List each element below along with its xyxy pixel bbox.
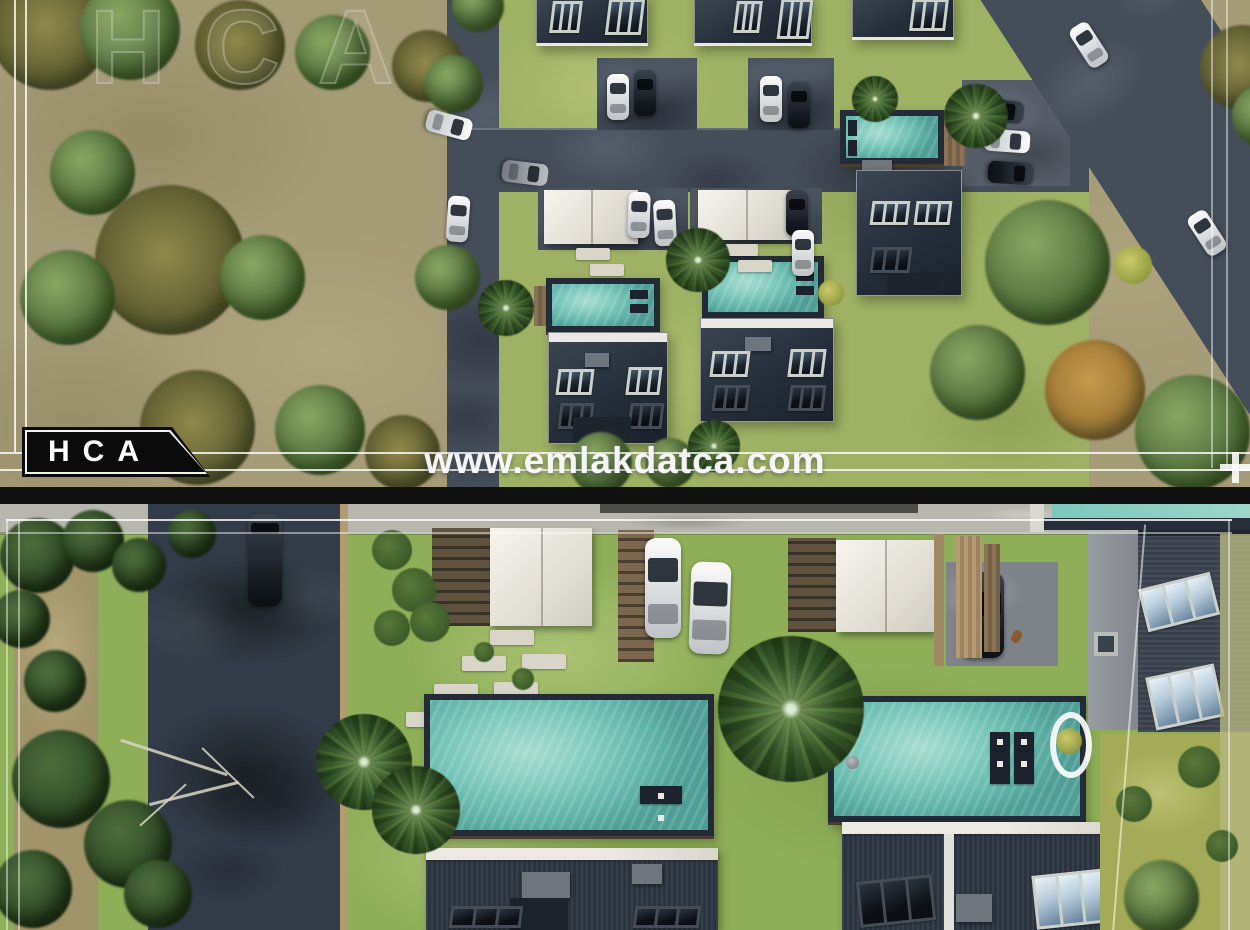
- tree: [1124, 860, 1199, 930]
- palm-tree: [666, 228, 730, 292]
- swimming-pool-large: [828, 696, 1086, 825]
- wood-screen: [984, 544, 1000, 652]
- roof-ridge: [944, 834, 954, 930]
- panel: [813, 388, 823, 408]
- garden-shrub: [474, 642, 494, 662]
- frame-line: [25, 0, 27, 452]
- stepping-stone: [576, 248, 610, 260]
- panel: [1035, 877, 1061, 927]
- pool-water: [834, 702, 1080, 816]
- pergola: [788, 538, 836, 632]
- tree: [124, 860, 192, 928]
- panel: [744, 4, 752, 30]
- carport-canopy: [544, 190, 638, 244]
- rooftop-solar-panels: [733, 1, 763, 33]
- rooftop-solar-panels: [777, 0, 814, 39]
- stepping-stone: [590, 264, 624, 276]
- stepping-stone: [490, 630, 534, 645]
- rooftop-skylights: [555, 369, 594, 395]
- panel: [713, 354, 724, 374]
- tree: [415, 245, 480, 310]
- stepping-stone: [738, 260, 772, 272]
- panel: [791, 388, 801, 408]
- window: [1094, 632, 1118, 656]
- panel: [619, 2, 631, 32]
- pool-ring-planter: [1050, 712, 1092, 778]
- dark-roof-windows: [449, 906, 524, 928]
- roof-box: [585, 353, 609, 367]
- tree: [220, 235, 305, 320]
- tree-shadow: [150, 704, 340, 844]
- frame-line: [1226, 0, 1228, 468]
- car-dark: [987, 160, 1034, 185]
- image-separator: [0, 487, 1250, 504]
- carport-canopy: [490, 528, 592, 626]
- frame-line: [14, 0, 16, 452]
- rooftop-skylights: [787, 349, 826, 377]
- tree: [930, 325, 1025, 420]
- roof-box: [745, 337, 771, 351]
- panel: [873, 204, 884, 222]
- roof-parapet: [426, 848, 718, 860]
- watermark-url: www.emlakdatca.com: [0, 440, 1250, 482]
- panel: [498, 909, 520, 925]
- tree: [20, 250, 115, 345]
- car-white: [645, 538, 681, 638]
- panel: [885, 250, 897, 270]
- rooftop-solar-panels: [605, 0, 645, 35]
- panel: [736, 354, 747, 374]
- panel: [923, 2, 934, 28]
- bottom-aerial-view: [0, 504, 1250, 930]
- frame-line: [18, 519, 20, 930]
- autumn-tree: [1045, 340, 1145, 440]
- panel: [559, 372, 569, 392]
- pool-water: [430, 700, 708, 830]
- palm-tree: [852, 76, 898, 122]
- dark-roof-windows: [869, 247, 912, 273]
- car-white: [688, 561, 731, 654]
- car-white: [607, 74, 629, 120]
- sun-lounger: [990, 732, 1010, 784]
- rooftop-skylights: [870, 201, 911, 225]
- panel: [873, 250, 885, 270]
- ghost-brand-watermark: HCA: [90, 0, 431, 108]
- panel: [917, 204, 927, 222]
- panel: [475, 909, 497, 925]
- panel: [724, 354, 735, 374]
- sun-lounger: [640, 786, 682, 804]
- panel: [452, 909, 474, 925]
- frame-line: [1211, 0, 1213, 468]
- grass-strip: [1220, 534, 1250, 930]
- panel: [736, 4, 744, 30]
- panel: [651, 406, 661, 426]
- panel: [649, 370, 659, 392]
- tree-shadow: [150, 554, 340, 664]
- villa-roof: [700, 318, 834, 422]
- panel: [939, 204, 949, 222]
- car-dark: [248, 514, 282, 606]
- sun-lounger: [848, 120, 857, 136]
- panel: [570, 4, 579, 30]
- villa-roof: [694, 0, 812, 46]
- panel: [641, 406, 651, 426]
- rooftop-skylights: [625, 367, 662, 395]
- top-aerial-view: HCA: [0, 0, 1250, 487]
- garden-shrub: [512, 668, 534, 690]
- dark-roof-windows: [711, 385, 750, 411]
- roof-box: [522, 872, 570, 898]
- stepping-stone: [522, 654, 566, 669]
- villa-roof: [856, 170, 962, 296]
- swimming-pool: [546, 278, 660, 335]
- panel: [799, 2, 810, 36]
- panel: [885, 204, 896, 222]
- panel: [657, 909, 677, 925]
- dark-roof-windows: [633, 906, 702, 928]
- rooftop-skylights: [709, 351, 750, 377]
- panel: [636, 909, 656, 925]
- road-notch: [600, 504, 918, 513]
- villa-roof: [852, 0, 954, 40]
- sun-lounger: [848, 140, 857, 156]
- panel: [678, 909, 698, 925]
- car-dark: [634, 70, 656, 116]
- villa-roof: [426, 848, 718, 930]
- tree: [24, 650, 86, 712]
- dark-roof-windows: [787, 385, 826, 411]
- panel: [726, 388, 736, 408]
- panel: [896, 204, 907, 222]
- panel: [912, 2, 923, 28]
- wood-screen: [956, 536, 982, 658]
- villa-roof: [536, 0, 648, 46]
- roof-box: [632, 864, 662, 884]
- tree: [425, 55, 483, 113]
- panel: [883, 880, 908, 922]
- pool-wall: [1030, 504, 1044, 532]
- roof-parapet: [842, 822, 1114, 834]
- panel: [570, 372, 580, 392]
- panel: [791, 352, 802, 374]
- villa-roof: [548, 332, 668, 444]
- panel: [581, 372, 591, 392]
- panel: [934, 2, 945, 28]
- car-white: [792, 230, 814, 276]
- swimming-pool: [840, 110, 944, 167]
- roof-ridge: [701, 319, 833, 328]
- swimming-pool-large: [424, 694, 714, 839]
- panel: [859, 883, 884, 925]
- palm-tree: [478, 280, 534, 336]
- listing-image: HCA: [0, 0, 1250, 930]
- roof-extension: [887, 273, 943, 295]
- roof-ridge: [549, 333, 667, 342]
- shrub: [410, 602, 450, 642]
- dark-roof-windows: [856, 874, 936, 928]
- roof-box: [956, 894, 992, 922]
- frame-line: [1228, 519, 1230, 930]
- panel: [639, 370, 649, 392]
- dark-roof-windows: [627, 403, 664, 429]
- shrub: [1206, 830, 1238, 862]
- sun-lounger: [630, 304, 648, 313]
- villa-roof: [842, 822, 1114, 930]
- shrub: [372, 530, 412, 570]
- shrub: [818, 280, 844, 306]
- panel: [715, 388, 725, 408]
- panel: [552, 4, 561, 30]
- frame-line: [6, 519, 8, 930]
- car-dark: [788, 82, 810, 128]
- panel: [561, 4, 570, 30]
- tree: [112, 538, 166, 592]
- panel: [752, 4, 760, 30]
- sun-lounger: [796, 286, 814, 295]
- rooftop-skylights: [914, 201, 953, 225]
- rock: [846, 756, 859, 769]
- palm-tree: [372, 766, 460, 854]
- panel: [631, 406, 641, 426]
- rooftop-solar-panels: [909, 0, 949, 31]
- sun-lounger: [1014, 732, 1034, 784]
- palm-tree: [718, 636, 864, 782]
- panel: [802, 352, 813, 374]
- carport-canopy: [836, 540, 934, 632]
- frame-line: [6, 519, 1232, 521]
- pool-water: [846, 116, 938, 158]
- panel: [897, 250, 909, 270]
- car-white: [627, 192, 651, 239]
- panel: [629, 370, 639, 392]
- tree: [168, 510, 216, 558]
- fence: [934, 534, 944, 666]
- sun-lounger: [630, 290, 648, 299]
- panel: [802, 388, 812, 408]
- panel: [813, 352, 824, 374]
- panel: [630, 2, 642, 32]
- panel: [907, 877, 932, 919]
- rooftop-solar-panels: [549, 1, 583, 33]
- shrub: [1178, 746, 1220, 788]
- car-white: [445, 195, 470, 242]
- panel: [608, 2, 620, 32]
- car-white: [760, 76, 782, 122]
- frame-line: [6, 532, 1232, 534]
- panel: [737, 388, 747, 408]
- panel: [1058, 874, 1084, 924]
- rooftop-skylights: [1031, 868, 1110, 929]
- panel: [561, 406, 571, 426]
- palm-tree: [944, 84, 1008, 148]
- tree: [985, 200, 1110, 325]
- panel: [928, 204, 938, 222]
- shrub: [374, 610, 410, 646]
- shrub: [1114, 246, 1152, 284]
